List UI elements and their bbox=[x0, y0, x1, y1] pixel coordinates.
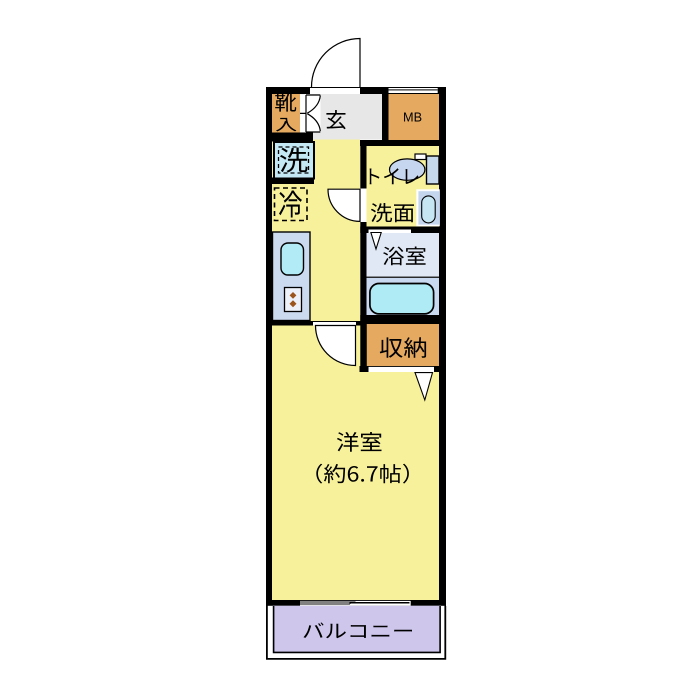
svg-text:MB: MB bbox=[403, 110, 422, 124]
